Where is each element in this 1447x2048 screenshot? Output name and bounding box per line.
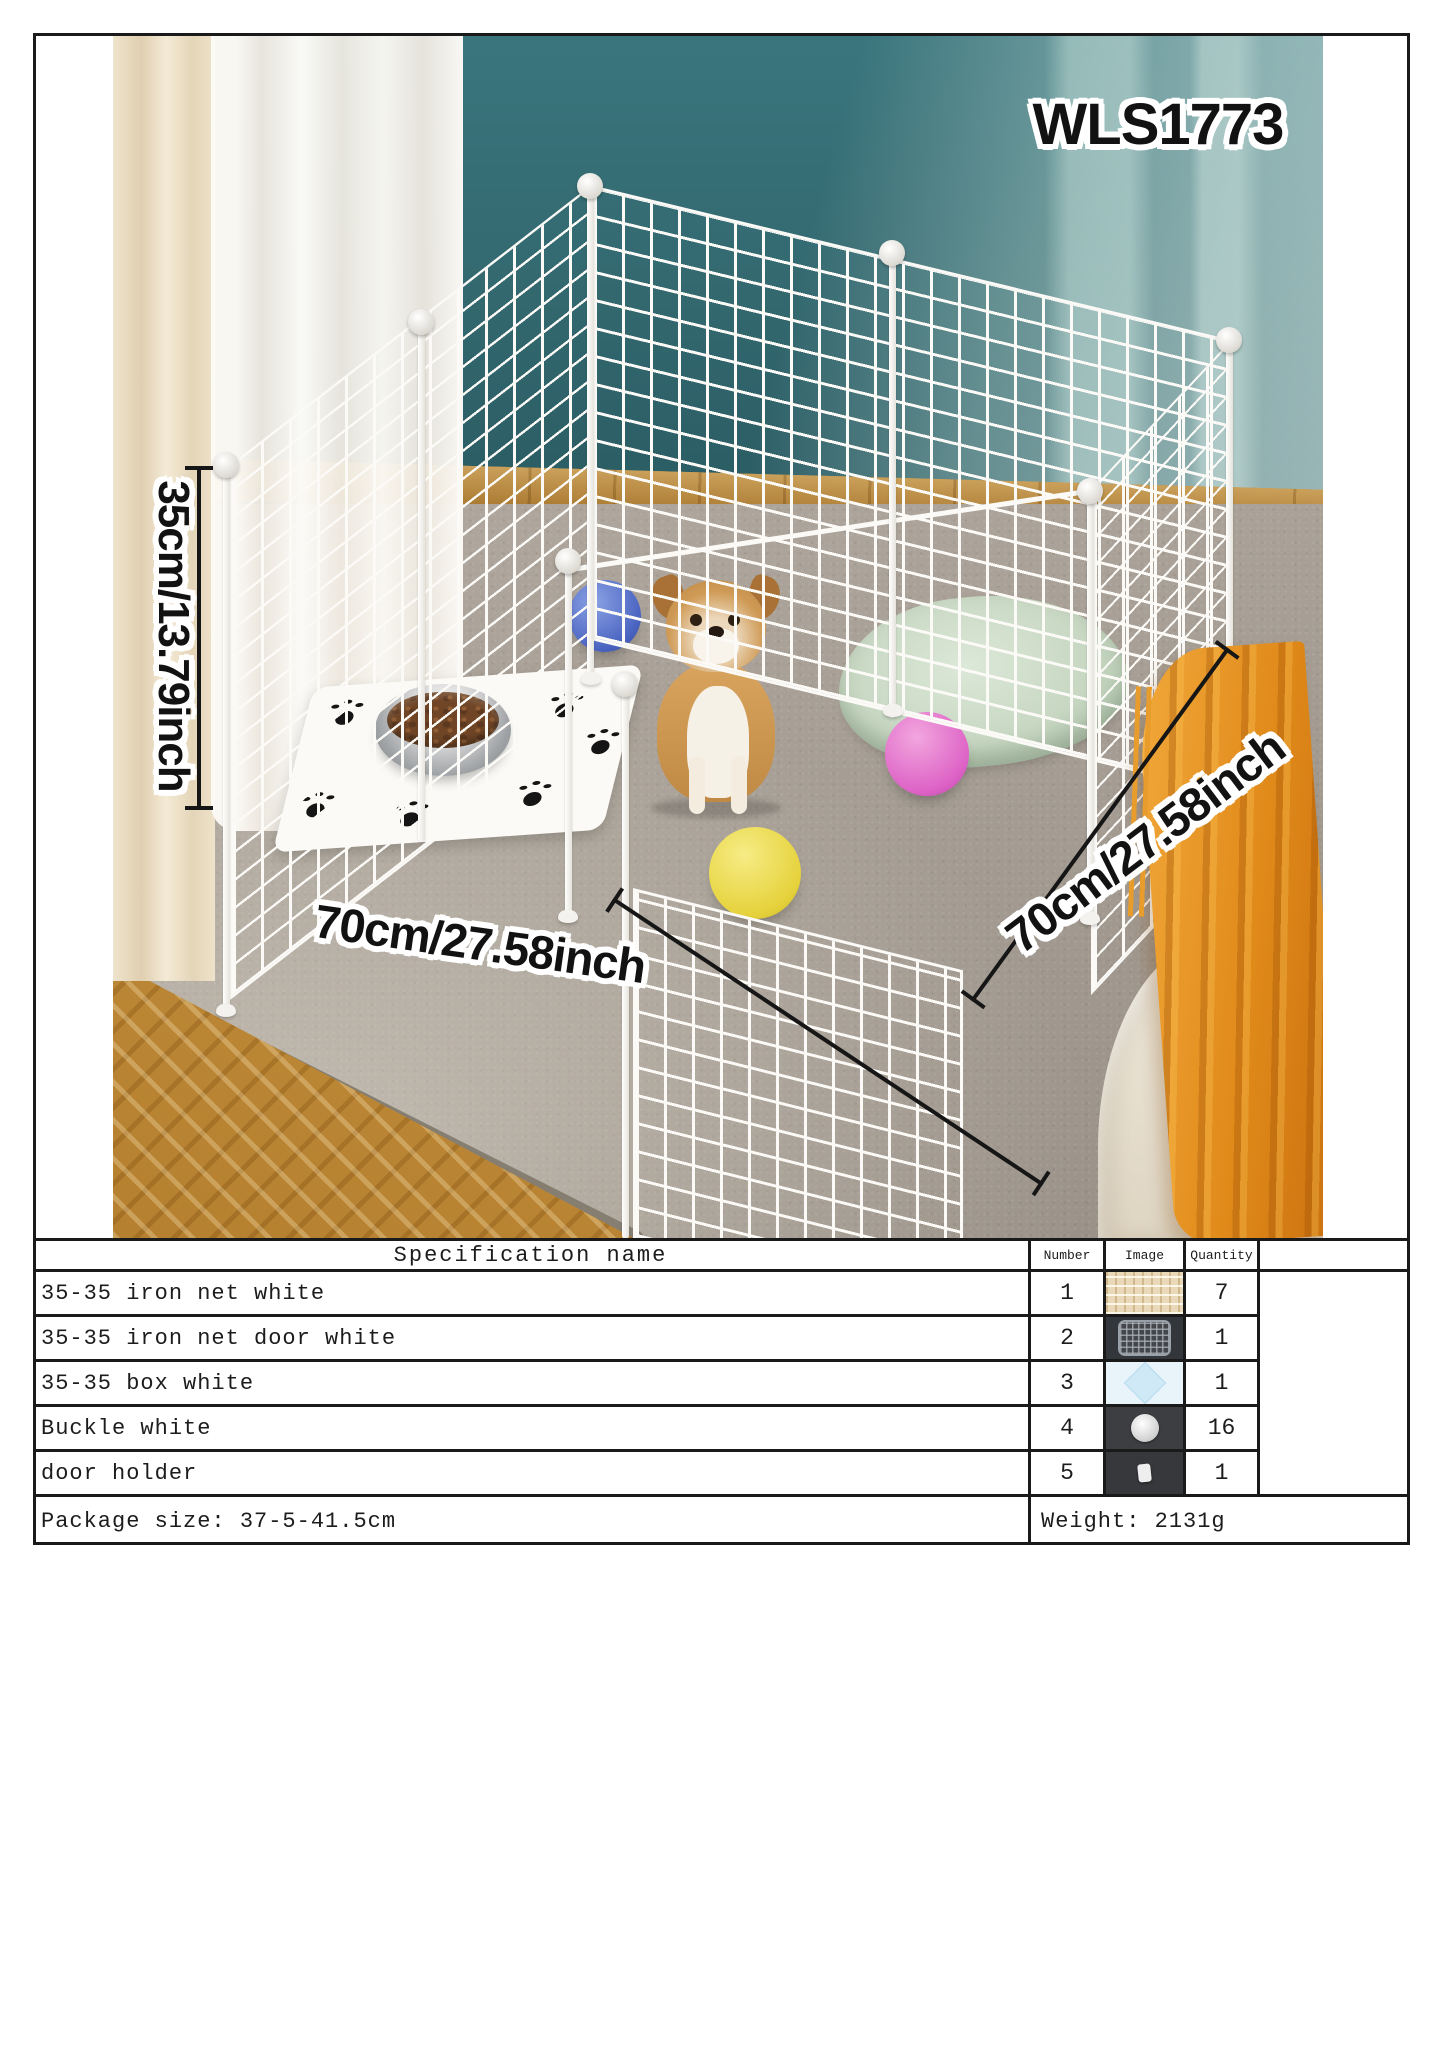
post-foot bbox=[558, 910, 578, 923]
header-empty-cell bbox=[1260, 1241, 1410, 1272]
pen-post bbox=[565, 561, 572, 921]
puppy-leg bbox=[689, 756, 705, 814]
spec-row-quantity: 1 bbox=[1186, 1317, 1260, 1362]
package-size-cell: Package size: 37-5-41.5cm bbox=[33, 1497, 1031, 1545]
buckle-white-thumbnail bbox=[1106, 1407, 1183, 1449]
spec-row-quantity: 1 bbox=[1186, 1362, 1260, 1407]
puppy-leg bbox=[731, 756, 747, 814]
post-foot bbox=[581, 672, 601, 685]
pen-post bbox=[587, 186, 594, 681]
spec-row-image bbox=[1106, 1407, 1186, 1452]
spec-row-number: 4 bbox=[1031, 1407, 1106, 1452]
specification-table: Specification name Number Image Quantity… bbox=[33, 1238, 1410, 1545]
spec-row-name: Buckle white bbox=[33, 1407, 1031, 1452]
spec-row-number: 2 bbox=[1031, 1317, 1106, 1362]
post-ball-cap bbox=[213, 452, 239, 478]
post-ball-cap bbox=[1077, 478, 1103, 504]
weight-cell: Weight: 2131g bbox=[1031, 1497, 1410, 1545]
spec-row-name: 35-35 iron net door white bbox=[33, 1317, 1031, 1362]
number-header-cell: Number bbox=[1031, 1241, 1106, 1272]
spec-row-name: 35-35 iron net white bbox=[33, 1272, 1031, 1317]
spec-row-number: 3 bbox=[1031, 1362, 1106, 1407]
door-holder-thumbnail bbox=[1106, 1452, 1183, 1494]
iron-net-door-thumbnail bbox=[1106, 1317, 1183, 1359]
spec-row-image bbox=[1106, 1362, 1186, 1407]
box-white-thumbnail bbox=[1106, 1362, 1183, 1404]
spec-row-quantity: 1 bbox=[1186, 1452, 1260, 1497]
spec-row-quantity: 7 bbox=[1186, 1272, 1260, 1317]
spec-name-header-cell: Specification name bbox=[33, 1241, 1031, 1272]
post-ball-cap bbox=[612, 671, 638, 697]
spec-row-image bbox=[1106, 1452, 1186, 1497]
post-ball-cap bbox=[1216, 327, 1242, 353]
post-ball-cap bbox=[577, 173, 603, 199]
spec-row-number: 1 bbox=[1031, 1272, 1106, 1317]
yellow-ball bbox=[709, 827, 801, 919]
paw-print bbox=[590, 739, 611, 754]
post-ball-cap bbox=[408, 309, 434, 335]
post-ball-cap bbox=[555, 548, 581, 574]
image-header-cell: Image bbox=[1106, 1241, 1186, 1272]
pen-post bbox=[889, 253, 896, 718]
spec-row-name: 35-35 box white bbox=[33, 1362, 1031, 1407]
paw-print bbox=[522, 791, 543, 806]
quantity-header-cell: Quantity bbox=[1186, 1241, 1260, 1272]
product-photo: WLS1773 35cm/13.79inch 70cm/27.58inch 70… bbox=[113, 36, 1323, 1238]
height-dimension-label: 35cm/13.79inch bbox=[134, 471, 198, 801]
table-empty-column bbox=[1260, 1272, 1410, 1497]
spec-row-image bbox=[1106, 1317, 1186, 1362]
post-ball-cap bbox=[879, 240, 905, 266]
spec-row-name: door holder bbox=[33, 1452, 1031, 1497]
model-code-label: WLS1773 bbox=[993, 91, 1323, 158]
spec-row-quantity: 16 bbox=[1186, 1407, 1260, 1452]
iron-net-white-thumbnail bbox=[1106, 1272, 1183, 1314]
post-foot bbox=[216, 1004, 236, 1017]
spec-row-image bbox=[1106, 1272, 1186, 1317]
post-foot bbox=[883, 704, 903, 717]
pen-post bbox=[223, 465, 230, 1013]
pen-post bbox=[418, 322, 425, 842]
spec-row-number: 5 bbox=[1031, 1452, 1106, 1497]
